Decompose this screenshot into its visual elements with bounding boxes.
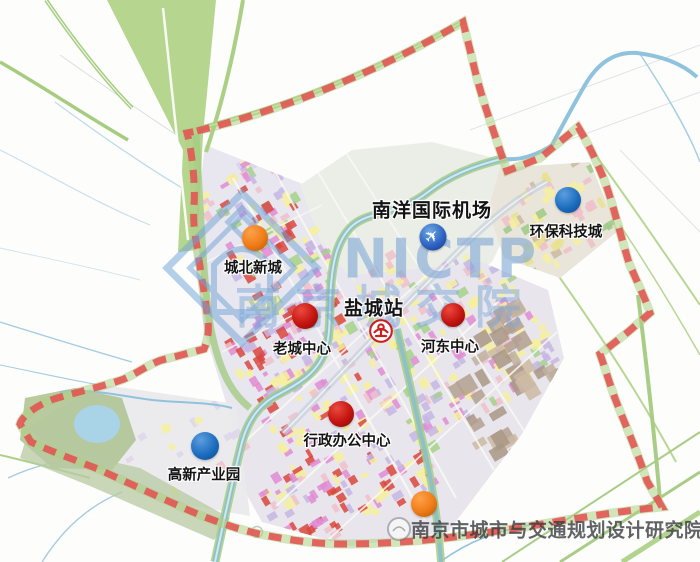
south-orange-marker[interactable] (411, 491, 437, 517)
planning-map: NICTP 南京城交院 南洋国际机场盐城站城北新城环保科技城老城中心河东中心行政… (0, 0, 700, 562)
chengbei-marker[interactable] (242, 225, 268, 251)
gaoxin-marker[interactable] (191, 432, 219, 460)
airplane-glyph: ✈ (422, 226, 444, 248)
pond (74, 405, 120, 443)
xingzheng-marker[interactable] (328, 401, 354, 427)
huanbao-marker[interactable] (555, 187, 581, 213)
airplane-icon[interactable]: ✈ (420, 224, 447, 251)
map-base (0, 0, 700, 562)
china-railway-icon[interactable] (369, 319, 394, 344)
hedong-marker[interactable] (441, 303, 465, 327)
laocheng-marker[interactable] (292, 303, 318, 329)
institute-logo-watermark (386, 516, 412, 542)
